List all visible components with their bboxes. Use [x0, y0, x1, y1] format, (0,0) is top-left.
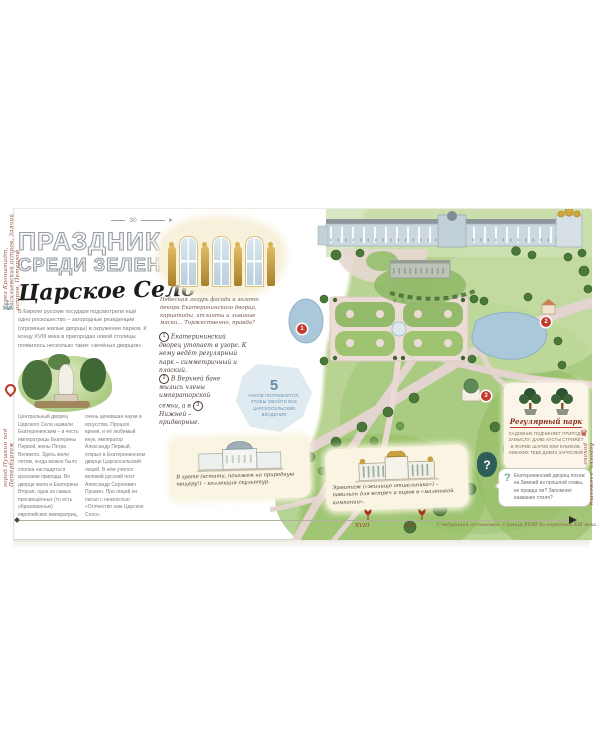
sprout-icon [364, 509, 372, 520]
page-number: 30 [129, 217, 136, 224]
note-number-2: 2 [159, 374, 169, 384]
park-box-text: Садовник подчиняет природу замыслу: даже… [508, 431, 584, 456]
timeline-era-start: XVIII [355, 523, 369, 529]
page-title-line2: СРЕДИ ЗЕЛЕНИ [18, 256, 176, 275]
margin-route-text: Через Кронштадт, Васильевский остров, За… [3, 212, 21, 310]
fountain [392, 322, 406, 336]
atlant-figure-illustration [234, 246, 242, 286]
great-pond [472, 312, 547, 359]
question-bubble: ? Екатерининский дворец похож на Зимний … [498, 468, 591, 507]
timeline-note: Следующая остановка: с конца XVIII до се… [437, 522, 571, 528]
bubble-question-icon: ? [504, 473, 511, 502]
book-page-scan: 30 ПРАЗДНИК СРЕДИ ЗЕЛЕНИ Царское Село В … [0, 0, 600, 750]
rule-dash [111, 220, 125, 221]
hermitage-card: Эрмитаж («жилище отшельника») – павильон… [325, 445, 469, 512]
grotto-caption: В гроте (кстати, похожем на природную пе… [176, 471, 304, 489]
page-title-line1: ПРАЗДНИК [18, 230, 161, 255]
margin-style-text: барокко, элементы рококо [582, 443, 594, 523]
palace-facade-vignette [160, 220, 282, 294]
hermitage-pavilion-illustration [350, 449, 443, 482]
note-text-2a: В Верхней бане мылись члены императорско… [159, 376, 220, 410]
topiary-illustration [514, 386, 578, 416]
regular-park-box: Регулярный парк Садовник подчиняет приро… [504, 383, 588, 469]
map-marker-2: 2 [541, 317, 551, 327]
atlant-figure-illustration [267, 246, 275, 286]
page-number-rule: 30 [98, 215, 186, 225]
facade-caption: Небесная лазурь фасада и золото декора Е… [160, 297, 278, 328]
map-note-1: 1 Екатерининский дворец утопает в узоре.… [159, 332, 249, 376]
statue-illustration [58, 364, 74, 396]
garden-bench [34, 401, 90, 408]
atlant-figure-illustration [201, 246, 209, 286]
crown-icon: ♛ [580, 428, 588, 439]
history-column-1: Центральный дворец Царского Села назвали… [18, 414, 79, 519]
history-column-2: очень ценившая науки и искусства. Прошло… [85, 414, 146, 519]
statue-vignette [18, 354, 112, 414]
note-text-2b: Нижней – придворные. [159, 411, 200, 426]
question-text: Екатерининский дворец похож на Зимний из… [514, 473, 585, 502]
note-number-3: 3 [193, 401, 203, 411]
palace-window-illustration [180, 237, 197, 286]
intro-paragraph: В Европе русские государи подсмотрели ещ… [18, 308, 148, 350]
anchor-icon: ⚓ [2, 300, 13, 311]
note-text-1: Екатерининский дворец утопает в узоре. К… [159, 334, 246, 375]
park-box-title: Регулярный парк [510, 417, 582, 428]
palace-window-illustration [213, 237, 230, 286]
map-marker-3: 3 [481, 391, 491, 401]
location-pin-icon [3, 382, 19, 398]
next-page-arrow-icon [569, 516, 577, 524]
timeline-line [16, 520, 576, 521]
atlant-figure-illustration [168, 246, 176, 286]
rule-dash [141, 220, 165, 221]
formal-parterre [330, 297, 468, 361]
stat-value: 5 [270, 378, 278, 393]
timeline-era-end: XIX [405, 523, 415, 529]
stat-label: часов потребуется, чтобы обойти все царс… [246, 393, 302, 417]
map-note-2: 2 В Верхней бане мылись члены императорс… [159, 374, 231, 428]
palace-window-illustration [246, 237, 263, 286]
hermitage-caption: Эрмитаж («жилище отшельника») – павильон… [332, 481, 463, 507]
map-marker-1: 1 [297, 324, 307, 334]
green-dome-pavilion [462, 379, 480, 401]
grotto-card: В гроте (кстати, похожем на природную пе… [169, 435, 311, 501]
sprout-icon [418, 509, 426, 520]
small-pond [289, 299, 323, 343]
note-number-1: 1 [159, 332, 169, 342]
grotto-pavilion-illustration [196, 440, 283, 472]
page-edge-bottom [13, 539, 590, 549]
margin-location-text: город Пушкин под Петербургом [3, 397, 15, 487]
rule-arrow-icon [169, 218, 173, 222]
